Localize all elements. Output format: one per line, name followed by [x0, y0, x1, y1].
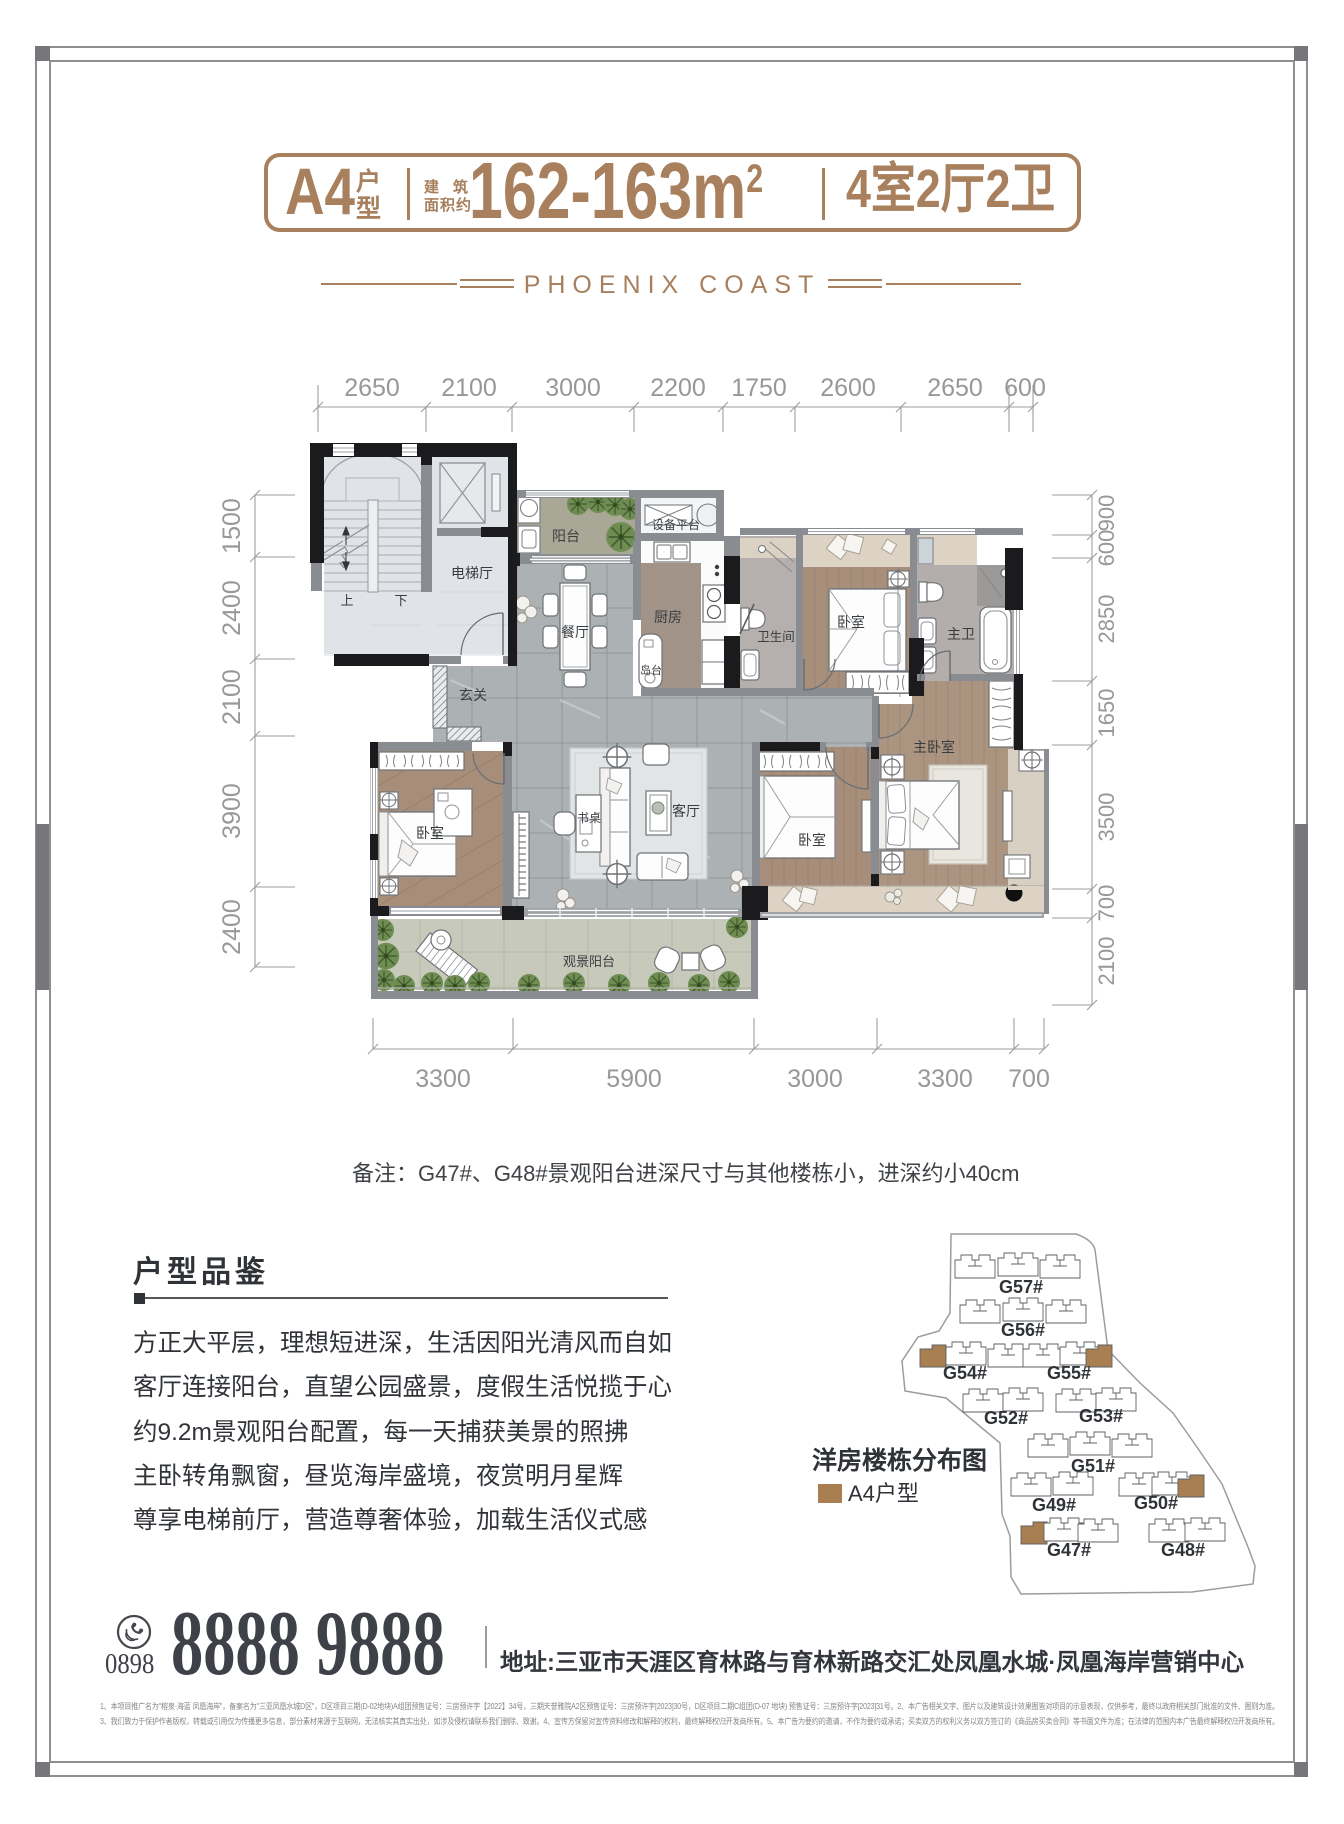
svg-text:2850: 2850 [1094, 595, 1119, 644]
svg-text:阳台: 阳台 [552, 528, 580, 544]
svg-text:3500: 3500 [1094, 793, 1119, 842]
svg-text:G48#: G48# [1161, 1540, 1205, 1560]
svg-text:2650: 2650 [927, 374, 983, 402]
svg-text:G57#: G57# [999, 1277, 1043, 1297]
svg-text:G50#: G50# [1134, 1493, 1178, 1513]
svg-text:上: 上 [340, 593, 353, 608]
svg-text:3300: 3300 [415, 1065, 471, 1093]
svg-text:主卧室: 主卧室 [913, 739, 955, 755]
svg-text:1650: 1650 [1094, 689, 1119, 738]
svg-text:玄关: 玄关 [459, 687, 487, 703]
svg-text:观景阳台: 观景阳台 [563, 954, 615, 969]
svg-text:900: 900 [1094, 495, 1119, 532]
svg-text:3300: 3300 [917, 1065, 973, 1093]
svg-text:厨房: 厨房 [654, 609, 682, 625]
svg-text:2400: 2400 [218, 580, 246, 636]
svg-text:餐厅: 餐厅 [561, 624, 589, 640]
svg-text:G49#: G49# [1032, 1495, 1076, 1515]
svg-text:设备平台: 设备平台 [652, 517, 700, 532]
svg-text:G54#: G54# [943, 1363, 987, 1383]
svg-text:洋房楼栋分布图: 洋房楼栋分布图 [812, 1446, 987, 1475]
svg-text:卧室: 卧室 [798, 832, 826, 848]
svg-text:5900: 5900 [606, 1065, 662, 1093]
svg-text:卧室: 卧室 [837, 614, 865, 630]
svg-text:2400: 2400 [218, 899, 246, 955]
svg-text:1750: 1750 [731, 374, 787, 402]
svg-text:2100: 2100 [218, 669, 246, 725]
svg-text:书桌: 书桌 [577, 811, 601, 825]
svg-text:3000: 3000 [787, 1065, 843, 1093]
svg-text:客厅: 客厅 [672, 803, 700, 819]
svg-text:3000: 3000 [545, 374, 601, 402]
svg-text:700: 700 [1094, 885, 1119, 922]
svg-text:2100: 2100 [1094, 937, 1119, 986]
svg-text:A4户型: A4户型 [848, 1481, 919, 1506]
svg-text:600: 600 [1094, 530, 1119, 567]
svg-text:主卫: 主卫 [947, 626, 975, 642]
svg-text:3900: 3900 [218, 783, 246, 839]
svg-text:600: 600 [1004, 374, 1046, 402]
svg-text:2650: 2650 [344, 374, 400, 402]
svg-text:G47#: G47# [1047, 1540, 1091, 1560]
svg-text:卧室: 卧室 [416, 825, 444, 841]
svg-text:卫生间: 卫生间 [757, 630, 795, 644]
svg-text:1500: 1500 [218, 498, 246, 554]
svg-text:下: 下 [394, 593, 407, 608]
svg-text:2100: 2100 [441, 374, 497, 402]
svg-text:G55#: G55# [1047, 1363, 1091, 1383]
svg-text:G52#: G52# [984, 1408, 1028, 1428]
svg-text:电梯厅: 电梯厅 [451, 565, 493, 581]
svg-text:岛台: 岛台 [640, 663, 662, 677]
svg-text:2200: 2200 [650, 374, 706, 402]
svg-text:G53#: G53# [1079, 1406, 1123, 1426]
svg-text:700: 700 [1008, 1065, 1050, 1093]
svg-text:2600: 2600 [820, 374, 876, 402]
svg-text:G56#: G56# [1001, 1320, 1045, 1340]
